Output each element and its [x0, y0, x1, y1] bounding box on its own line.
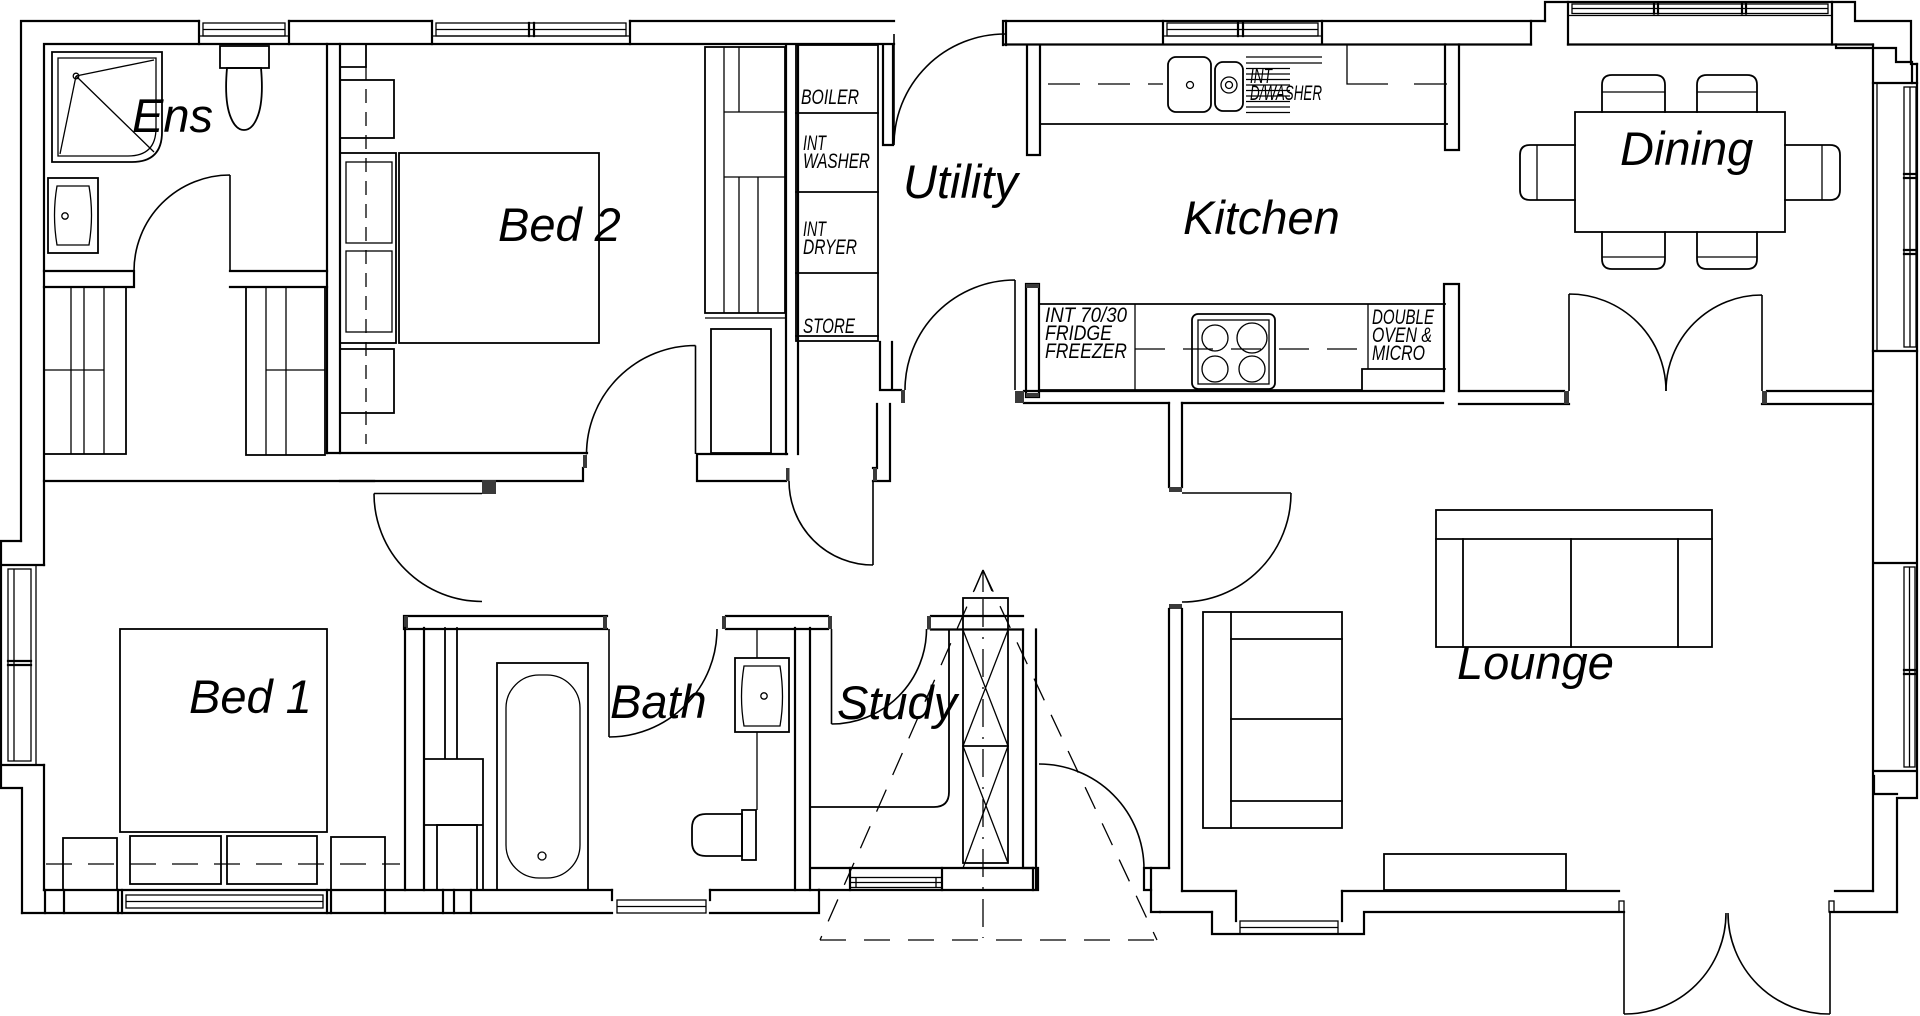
svg-text:Ens: Ens	[132, 89, 213, 142]
svg-text:Bed 2: Bed 2	[498, 198, 621, 251]
svg-text:Bed 1: Bed 1	[189, 670, 312, 723]
svg-text:FREEZER: FREEZER	[1045, 340, 1127, 363]
svg-text:D/WASHER: D/WASHER	[1250, 82, 1322, 105]
svg-text:Study: Study	[837, 676, 960, 729]
svg-text:Lounge: Lounge	[1457, 636, 1614, 689]
svg-text:Kitchen: Kitchen	[1183, 191, 1340, 244]
svg-text:MICRO: MICRO	[1372, 342, 1425, 365]
svg-text:Dining: Dining	[1620, 122, 1753, 175]
svg-text:Bath: Bath	[610, 675, 707, 728]
svg-text:Utility: Utility	[903, 155, 1020, 208]
svg-text:WASHER: WASHER	[803, 150, 870, 173]
svg-text:BOILER: BOILER	[801, 86, 859, 109]
svg-text:STORE: STORE	[803, 315, 856, 338]
svg-text:DRYER: DRYER	[803, 236, 857, 259]
